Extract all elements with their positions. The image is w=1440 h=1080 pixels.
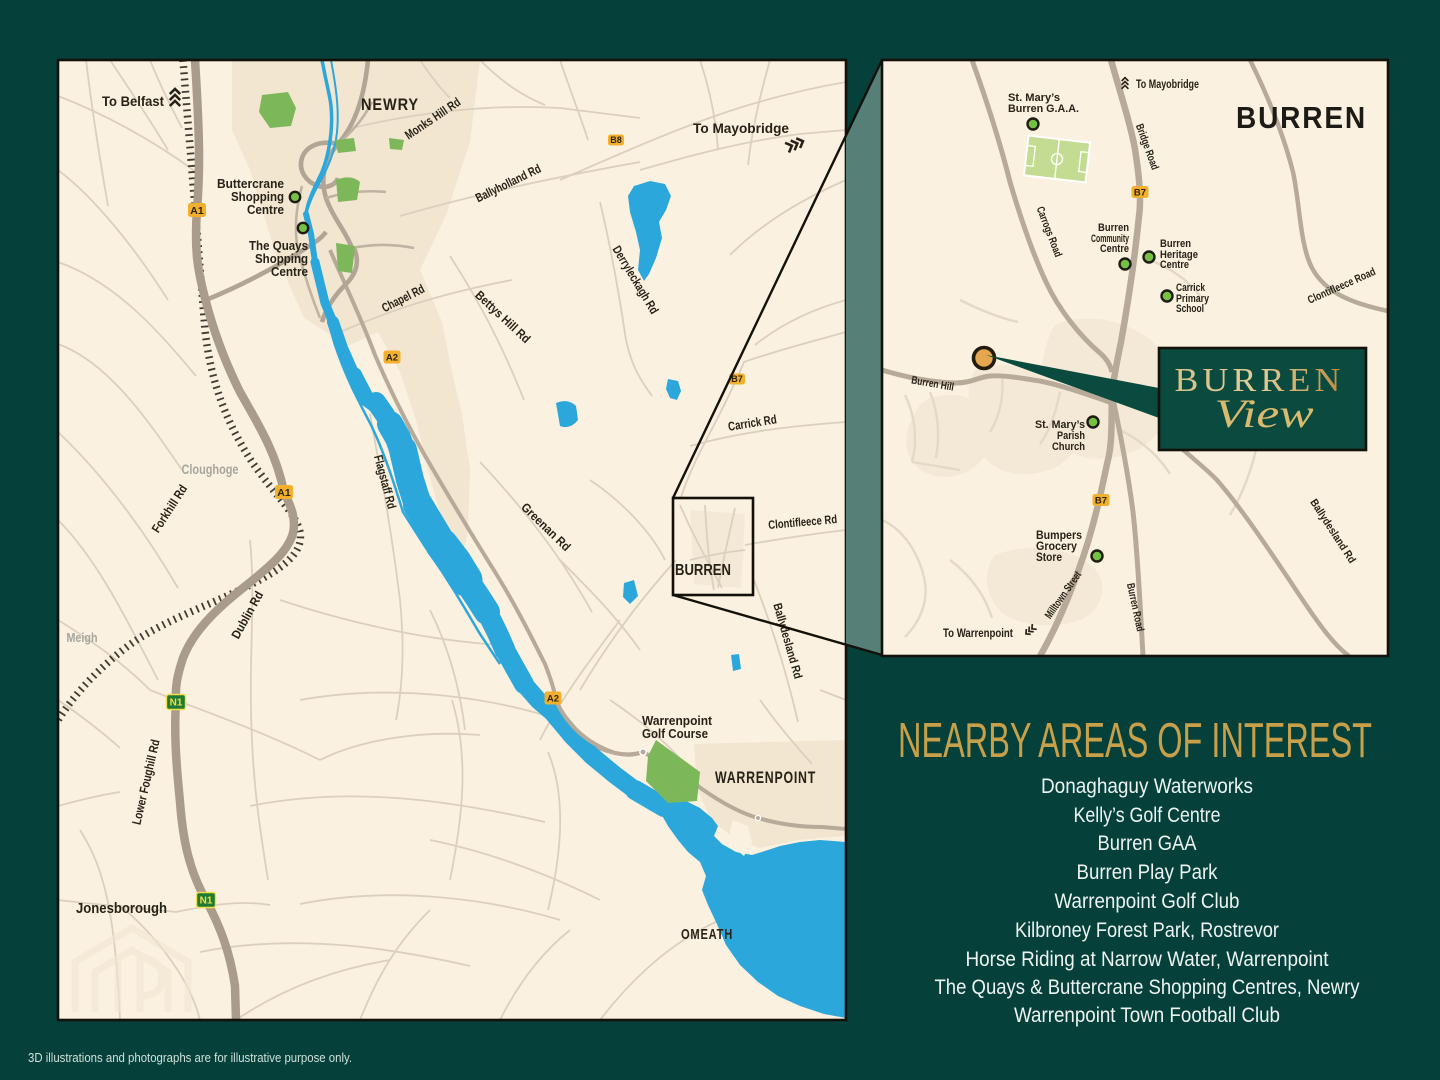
svg-text:Jonesborough: Jonesborough xyxy=(76,900,167,917)
svg-text:Burren Play Park: Burren Play Park xyxy=(1077,861,1218,884)
svg-text:To Warrenpoint: To Warrenpoint xyxy=(943,628,1013,640)
svg-text:The Quays & Buttercrane Shoppi: The Quays & Buttercrane Shopping Centres… xyxy=(935,976,1360,999)
svg-text:Church: Church xyxy=(1052,441,1085,453)
svg-text:Centre: Centre xyxy=(271,264,308,279)
svg-text:Centre: Centre xyxy=(1100,243,1129,255)
svg-text:Kelly’s Golf Centre: Kelly’s Golf Centre xyxy=(1074,804,1221,827)
svg-text:Warrenpoint Golf Club: Warrenpoint Golf Club xyxy=(1055,890,1240,913)
svg-text:BURREN: BURREN xyxy=(675,562,731,579)
svg-text:Burren G.A.A.: Burren G.A.A. xyxy=(1008,103,1079,115)
svg-text:NEARBY AREAS OF INTEREST: NEARBY AREAS OF INTEREST xyxy=(898,714,1372,768)
svg-text:NEWRY: NEWRY xyxy=(361,96,419,114)
svg-text:A2: A2 xyxy=(547,693,559,704)
svg-text:Golf Course: Golf Course xyxy=(642,727,708,741)
svg-text:Cloughoge: Cloughoge xyxy=(182,461,239,477)
svg-text:Warrenpoint Town Football Club: Warrenpoint Town Football Club xyxy=(1014,1004,1280,1027)
svg-text:School: School xyxy=(1176,303,1204,315)
svg-text:To Mayobridge: To Mayobridge xyxy=(1136,77,1199,91)
svg-text:To Mayobridge: To Mayobridge xyxy=(693,120,789,136)
svg-text:B7: B7 xyxy=(1134,187,1146,198)
svg-text:Horse Riding at Narrow Water,: Horse Riding at Narrow Water, Warrenpoin… xyxy=(966,948,1329,971)
svg-text:A1: A1 xyxy=(190,205,204,217)
svg-text:Store: Store xyxy=(1036,552,1062,564)
svg-text:OMEATH: OMEATH xyxy=(681,926,733,943)
svg-text:A1: A1 xyxy=(277,487,291,499)
svg-text:Centre: Centre xyxy=(247,202,284,217)
svg-text:View: View xyxy=(1215,391,1314,436)
svg-text:BURREN: BURREN xyxy=(1236,100,1367,135)
svg-text:N1: N1 xyxy=(200,896,213,907)
svg-text:WARRENPOINT: WARRENPOINT xyxy=(715,769,816,787)
svg-text:N1: N1 xyxy=(170,698,183,709)
svg-text:Kilbroney Forest Park, Rostrev: Kilbroney Forest Park, Rostrevor xyxy=(1015,919,1279,942)
svg-text:Burren GAA: Burren GAA xyxy=(1098,832,1197,855)
svg-text:B7: B7 xyxy=(731,374,743,384)
svg-text:A2: A2 xyxy=(386,352,398,363)
svg-text:Donaghaguy Waterworks: Donaghaguy Waterworks xyxy=(1041,775,1253,798)
svg-text:To Belfast: To Belfast xyxy=(102,93,164,109)
svg-text:B7: B7 xyxy=(1095,495,1107,506)
svg-text:Meigh: Meigh xyxy=(67,630,98,645)
svg-text:Warrenpoint: Warrenpoint xyxy=(642,714,713,728)
svg-text:B8: B8 xyxy=(610,135,622,145)
svg-text:Centre: Centre xyxy=(1160,259,1189,271)
svg-text:3D illustrations and photograp: 3D illustrations and photographs are for… xyxy=(28,1051,352,1065)
